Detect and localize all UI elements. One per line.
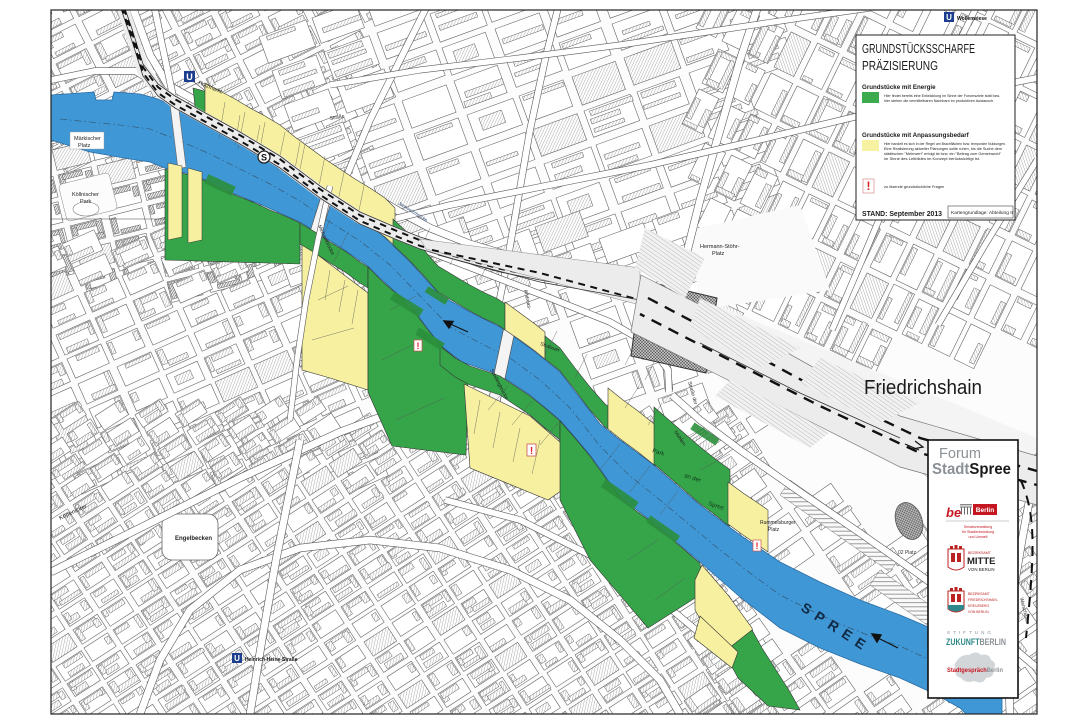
svg-text:Platz: Platz: [712, 251, 724, 257]
svg-text:Platz: Platz: [768, 527, 780, 533]
svg-text:Rummelsburger: Rummelsburger: [760, 520, 796, 526]
svg-text:U: U: [234, 654, 240, 663]
svg-text:U: U: [946, 13, 952, 22]
svg-text:Park: Park: [80, 199, 92, 205]
svg-text:STIFTUNG: STIFTUNG: [947, 630, 994, 635]
svg-text:STAND: September 2013: STAND: September 2013: [862, 209, 942, 218]
svg-text:BEZIRKSAMT: BEZIRKSAMT: [968, 592, 990, 596]
svg-text:Senatsverwaltung: Senatsverwaltung: [964, 525, 993, 529]
svg-text:Heinrich-Heine-Straße: Heinrich-Heine-Straße: [245, 657, 298, 663]
svg-text:BEZIRKSAMT: BEZIRKSAMT: [968, 551, 992, 555]
svg-text:und Umwelt: und Umwelt: [969, 535, 988, 539]
svg-text:Berlin: Berlin: [976, 507, 994, 514]
svg-text:StadtgesprächBerlin: StadtgesprächBerlin: [947, 667, 1003, 674]
svg-text:ZUKUNFTBERLIN: ZUKUNFTBERLIN: [946, 637, 1006, 647]
svg-text:GRUNDSTÜCKSSCHARFE: GRUNDSTÜCKSSCHARFE: [862, 41, 975, 56]
svg-text:be: be: [946, 505, 961, 520]
svg-text:FRIEDRICHSHAIN-: FRIEDRICHSHAIN-: [968, 598, 998, 602]
svg-text:für Stadtentwicklung: für Stadtentwicklung: [962, 530, 994, 534]
svg-text:S: S: [261, 153, 267, 163]
svg-text:U: U: [186, 72, 193, 82]
svg-text:!: !: [417, 341, 420, 351]
svg-text:Kartengrundlage: Abteilung II: Kartengrundlage: Abteilung II: [951, 210, 1013, 216]
svg-text:hier stehen die vermittelbaren: hier stehen die vermittelbaren Nachbarn …: [884, 98, 994, 103]
svg-text:!: !: [867, 179, 871, 193]
svg-text:VON BERLIN: VON BERLIN: [968, 567, 995, 572]
svg-text:im Sinne des Leitbildes im Kon: im Sinne des Leitbildes im Konzept berüc…: [884, 156, 980, 161]
svg-text:!: !: [756, 541, 759, 551]
svg-text:Friedrichshain: Friedrichshain: [864, 377, 982, 399]
svg-text:!: !: [530, 446, 533, 457]
svg-text:StadtSpree: StadtSpree: [932, 461, 1011, 478]
svg-text:zu lösende grundstückliche Fra: zu lösende grundstückliche Fragen: [884, 184, 944, 189]
svg-text:Köllnischer: Köllnischer: [72, 192, 99, 198]
svg-text:VON BERLIN: VON BERLIN: [968, 610, 989, 614]
svg-text:PRÄZISIERUNG: PRÄZISIERUNG: [862, 58, 938, 73]
svg-text:Wollenwiese: Wollenwiese: [957, 16, 987, 22]
svg-text:Grundstücke mit Anpassungsbeda: Grundstücke mit Anpassungsbedarf: [862, 132, 970, 139]
svg-text:KREUZBERG: KREUZBERG: [968, 604, 989, 608]
svg-text:02 Platz: 02 Platz: [898, 550, 917, 556]
svg-text:MITTE: MITTE: [967, 556, 996, 567]
svg-text:Grundstücke mit Energie: Grundstücke mit Energie: [862, 84, 936, 91]
svg-text:Hermann-Stöhr-: Hermann-Stöhr-: [700, 244, 740, 250]
svg-text:Engelbecken: Engelbecken: [175, 536, 212, 542]
svg-text:Forum: Forum: [939, 445, 981, 462]
